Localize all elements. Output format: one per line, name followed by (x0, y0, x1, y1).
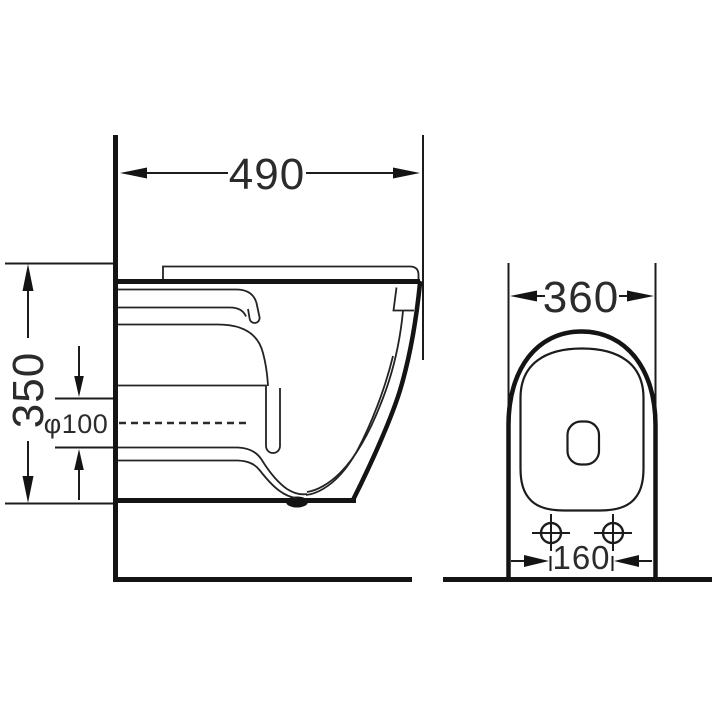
side-view: 490 350 φ100 (4, 135, 423, 580)
arrow-up-icon (74, 449, 84, 470)
dimension-350: 350 (4, 264, 113, 504)
bowl-inner-top-curve (118, 325, 268, 387)
arrow-down-icon (23, 476, 34, 503)
toilet-lid-outline (163, 267, 419, 280)
rim-channel-line-lower (118, 308, 246, 317)
trap-wall-inner-curve (307, 311, 403, 492)
seat-ring-outline (521, 349, 644, 511)
drain-hole-outline (568, 422, 600, 465)
rim-back-flap-line (394, 288, 415, 311)
trap-wall-outer-curve (306, 356, 393, 495)
dimension-490: 490 (120, 135, 423, 360)
arrow-right-icon (627, 291, 654, 302)
front-view: 360 (443, 263, 712, 580)
body-front-edge (354, 283, 421, 499)
rim-channel-line-upper (118, 290, 260, 323)
arrow-right-icon (393, 168, 420, 179)
dimension-360: 360 (509, 263, 656, 424)
dimension-360-label: 360 (543, 273, 619, 322)
dimension-160-label: 160 (552, 539, 610, 576)
arrow-right-icon (524, 555, 549, 567)
flush-tube-line (118, 386, 280, 454)
dimension-160: 160 (511, 539, 652, 576)
arrow-left-icon (614, 555, 639, 567)
trap-outlet-dot (286, 497, 308, 508)
arrow-down-icon (74, 376, 84, 397)
arrow-left-icon (510, 291, 537, 302)
dimension-phi100: φ100 (44, 346, 113, 500)
bowl-bottom-line-lower (118, 461, 297, 499)
arrow-up-icon (23, 264, 34, 291)
dimension-490-label: 490 (229, 150, 305, 199)
dimension-phi100-label: φ100 (44, 409, 109, 439)
bowl-bottom-line-upper (118, 448, 307, 495)
arrow-left-icon (120, 168, 147, 179)
technical-drawing-canvas: 490 350 φ100 (0, 0, 720, 720)
toilet-dimension-diagram: 490 350 φ100 (0, 0, 720, 720)
